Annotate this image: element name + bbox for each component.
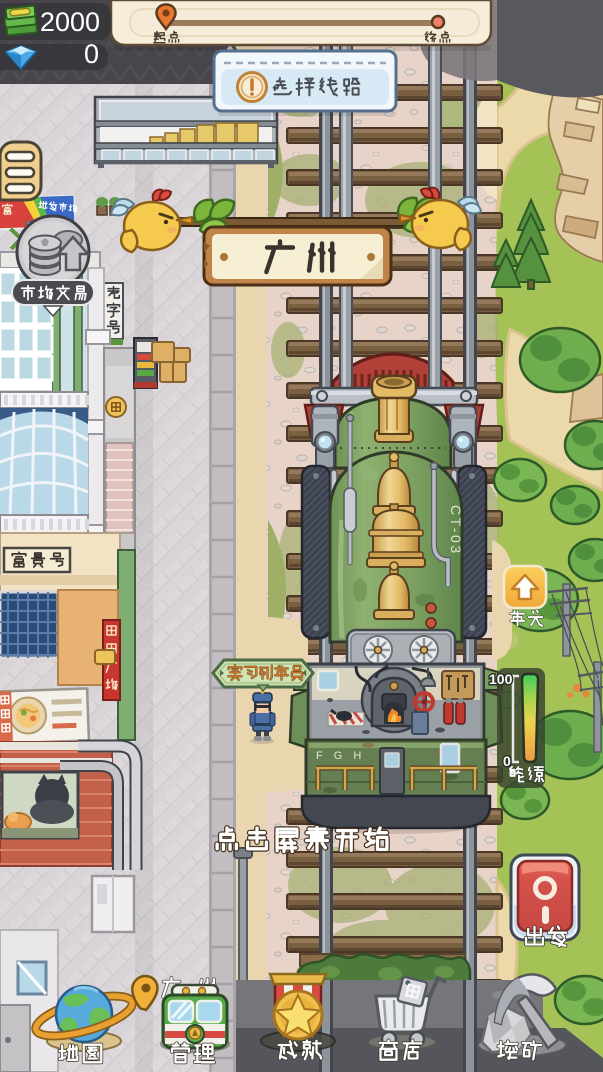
svg-text:0: 0 [503,753,511,769]
svg-text:2000: 2000 [40,7,100,37]
svg-text:F G H: F G H [316,750,365,762]
svg-text:CT-03: CT-03 [448,505,464,556]
svg-text:0: 0 [84,39,99,69]
svg-text:100: 100 [489,671,513,687]
